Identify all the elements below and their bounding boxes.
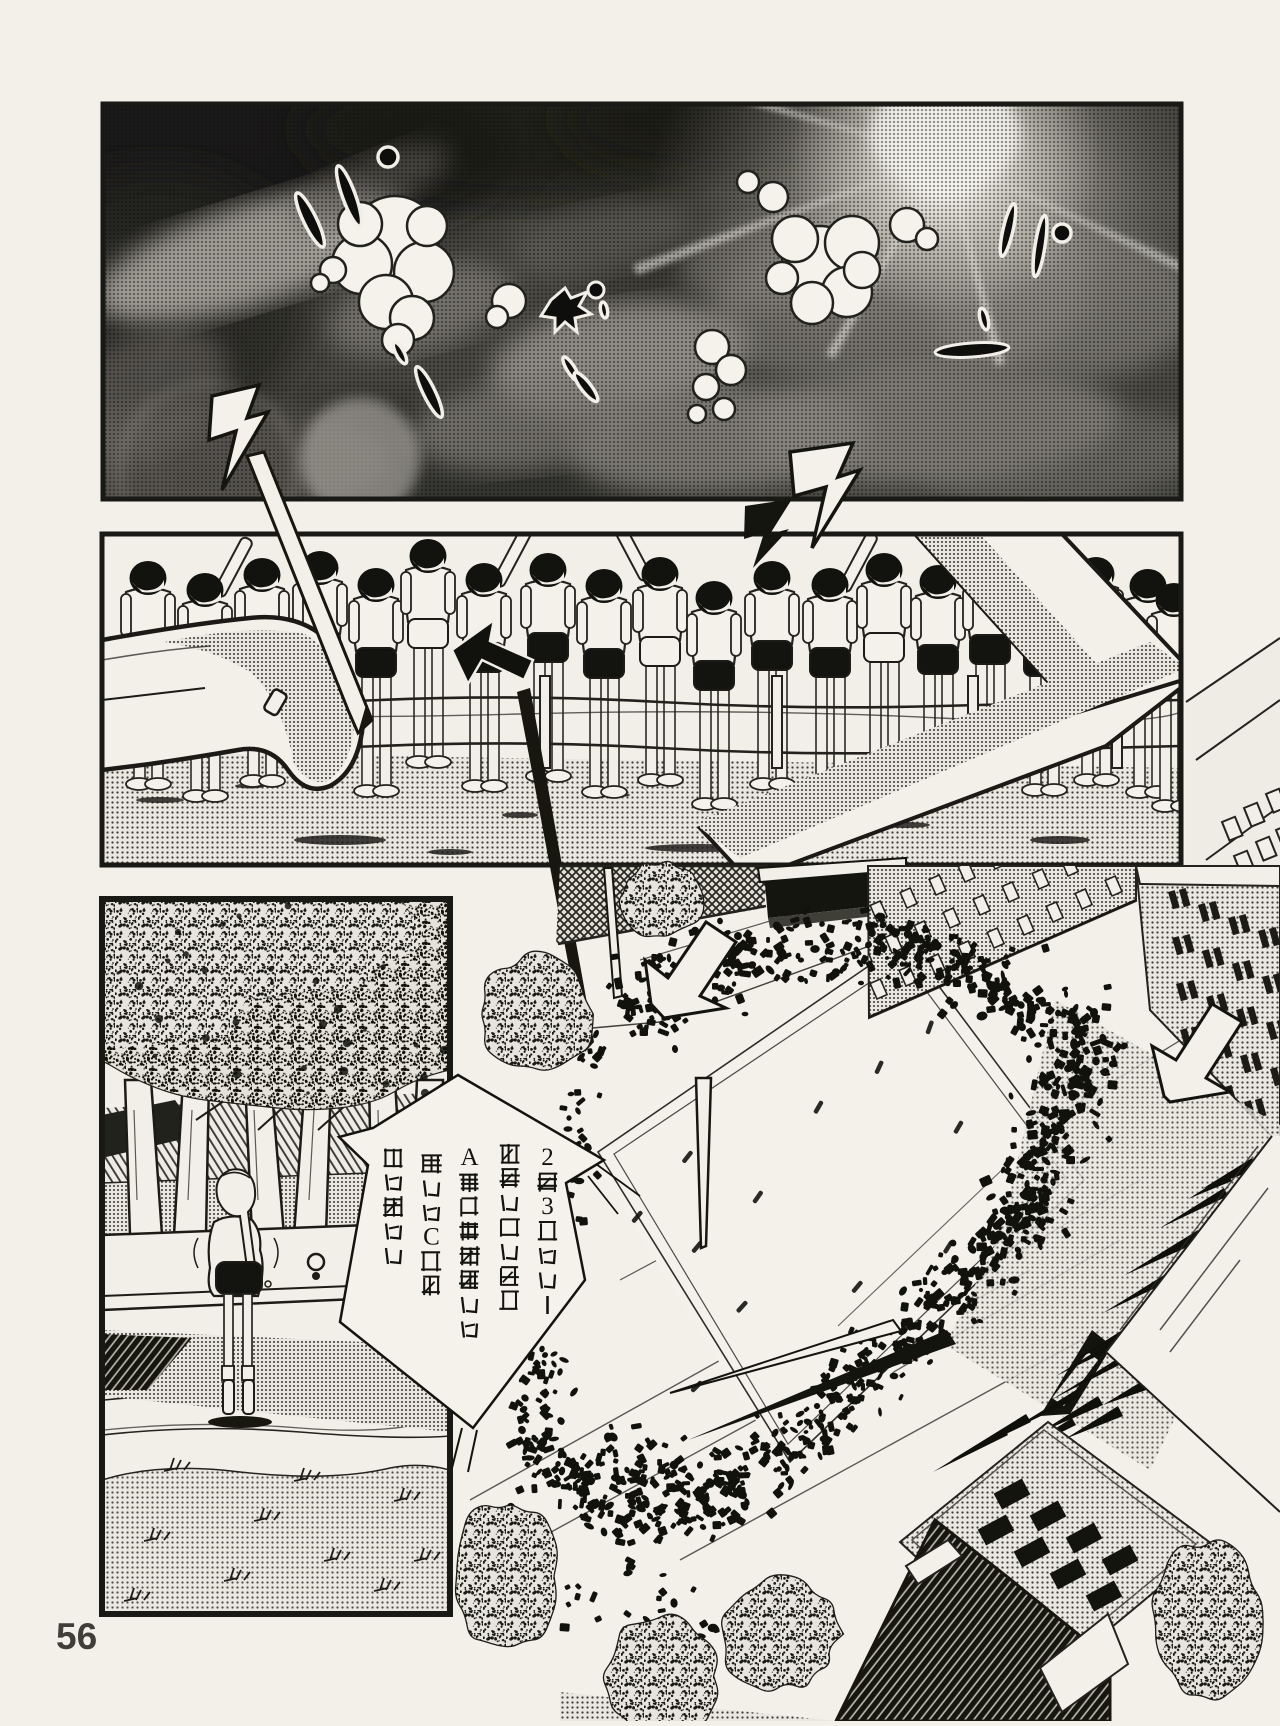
svg-text:2: 2 (541, 1144, 554, 1171)
svg-text:3: 3 (541, 1193, 554, 1220)
svg-text:A: A (460, 1144, 478, 1171)
svg-text:56: 56 (56, 1616, 97, 1657)
svg-text:C: C (423, 1224, 440, 1251)
